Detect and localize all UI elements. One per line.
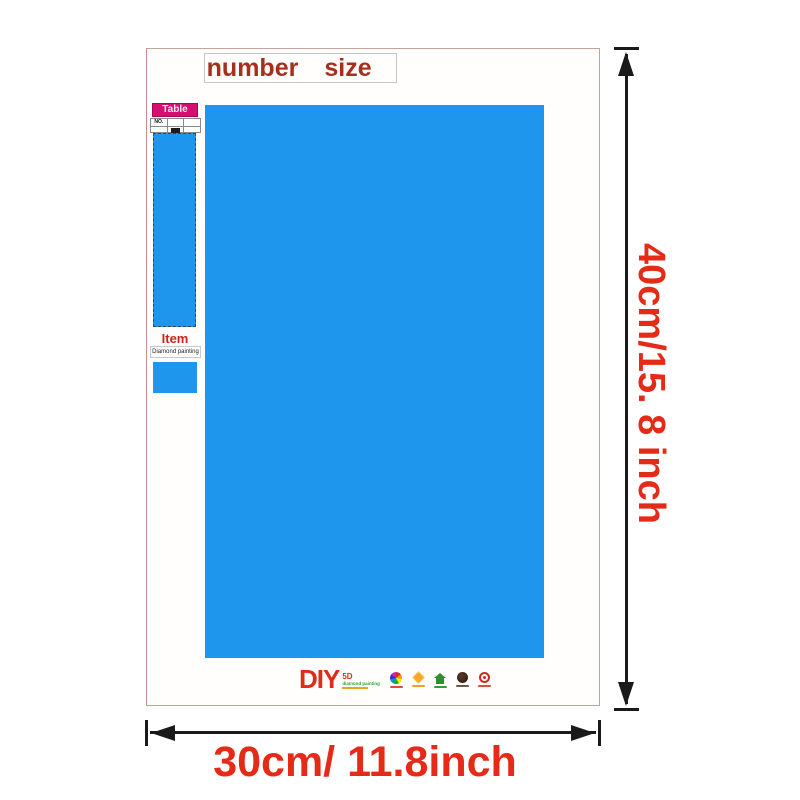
item-value-box: Diamond painting bbox=[150, 346, 201, 358]
width-arrow-right-cap bbox=[598, 720, 601, 746]
diy-brand-logo: DIY 5D diamond painting bbox=[299, 661, 599, 697]
feature-1 bbox=[390, 672, 403, 689]
color-swatch bbox=[153, 362, 197, 393]
quality-badge-icon bbox=[479, 672, 490, 683]
logo-5d-text: 5D bbox=[342, 673, 352, 681]
artwork-area bbox=[205, 105, 544, 658]
feature-5 bbox=[478, 672, 491, 689]
height-arrow-line bbox=[625, 54, 628, 704]
painting-canvas: number size Table NO. Item Diamond paint… bbox=[146, 48, 600, 706]
height-dimension-label: 40cm/15. 8 inch bbox=[629, 243, 672, 603]
house-icon bbox=[434, 672, 446, 684]
feature-4-caption bbox=[456, 685, 469, 688]
height-arrowhead-up-icon bbox=[618, 52, 634, 76]
feature-1-caption bbox=[390, 686, 403, 689]
feature-3 bbox=[434, 672, 447, 689]
round-drill-icon bbox=[457, 672, 468, 683]
height-arrowhead-down-icon bbox=[618, 682, 634, 706]
logo-underline-bar bbox=[342, 687, 368, 689]
table-header-row: NO. bbox=[151, 119, 200, 127]
height-arrow-bottom-cap bbox=[614, 708, 639, 711]
color-table-label: Table bbox=[152, 103, 198, 117]
table-header-no-cell: NO. bbox=[151, 119, 168, 127]
feature-2-caption bbox=[412, 685, 425, 688]
number-header-box: number bbox=[204, 53, 301, 83]
width-dimension-label: 30cm/ 11.8inch bbox=[175, 738, 555, 787]
feature-3-caption bbox=[434, 686, 447, 689]
feature-2 bbox=[412, 672, 425, 689]
color-wheel-icon bbox=[390, 672, 402, 684]
logo-feature-icons bbox=[390, 672, 491, 689]
width-arrowhead-left-icon bbox=[151, 725, 175, 741]
color-legend-strip bbox=[153, 133, 196, 327]
product-size-diagram: number size Table NO. Item Diamond paint… bbox=[0, 0, 800, 800]
table-header-color-cell bbox=[184, 119, 200, 127]
width-arrow-left-cap bbox=[145, 720, 148, 746]
width-arrowhead-right-icon bbox=[571, 725, 595, 741]
color-symbol-table: NO. bbox=[150, 118, 201, 133]
size-header-box: size bbox=[300, 53, 397, 83]
item-label: Item bbox=[147, 331, 203, 346]
logo-subtitle-text: diamond painting bbox=[342, 681, 380, 686]
height-arrow-top-cap bbox=[614, 47, 639, 50]
feature-4 bbox=[456, 672, 469, 689]
table-header-symbol-cell bbox=[168, 119, 185, 127]
diy-logo-text: DIY bbox=[299, 666, 339, 692]
diamond-gem-icon bbox=[412, 671, 425, 684]
width-arrow-line bbox=[150, 731, 596, 734]
feature-5-caption bbox=[478, 685, 491, 688]
logo-5d-block: 5D diamond painting bbox=[342, 673, 380, 689]
